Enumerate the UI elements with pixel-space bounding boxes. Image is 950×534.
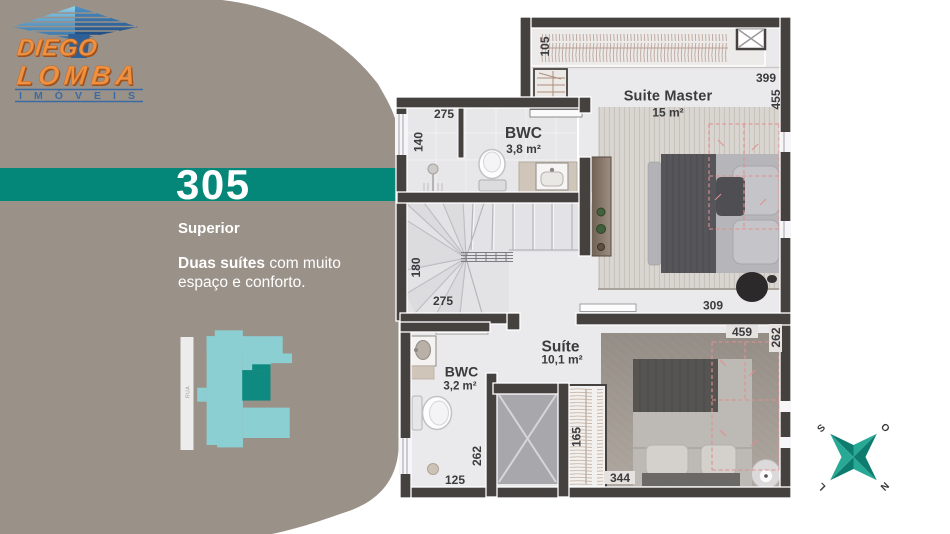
svg-text:DIEGO: DIEGO xyxy=(15,35,98,62)
svg-text:344: 344 xyxy=(610,471,630,485)
svg-text:15 m²: 15 m² xyxy=(652,106,683,120)
svg-text:125: 125 xyxy=(445,473,465,487)
svg-text:3,8 m²: 3,8 m² xyxy=(506,142,541,156)
svg-text:Duas suítes com muito: Duas suítes com muito xyxy=(178,255,341,272)
svg-text:309: 309 xyxy=(703,299,723,313)
svg-text:10,1 m²: 10,1 m² xyxy=(541,353,582,367)
svg-text:espaço e conforto.: espaço e conforto. xyxy=(178,274,306,291)
svg-text:180: 180 xyxy=(409,257,423,277)
svg-text:Suite Master: Suite Master xyxy=(624,89,713,105)
svg-text:455: 455 xyxy=(769,89,783,109)
svg-text:262: 262 xyxy=(769,327,783,347)
svg-text:105: 105 xyxy=(538,36,552,56)
svg-text:BWC: BWC xyxy=(445,364,478,380)
svg-text:275: 275 xyxy=(434,107,454,121)
svg-text:165: 165 xyxy=(570,427,584,447)
svg-text:459: 459 xyxy=(732,325,752,339)
svg-text:BWC: BWC xyxy=(505,125,542,142)
svg-text:140: 140 xyxy=(412,132,426,152)
svg-text:Superior: Superior xyxy=(178,220,240,237)
svg-text:275: 275 xyxy=(433,294,453,308)
svg-text:3,2 m²: 3,2 m² xyxy=(443,381,476,393)
svg-text:262: 262 xyxy=(470,446,484,466)
svg-text:RUA: RUA xyxy=(186,386,192,398)
svg-text:305: 305 xyxy=(176,161,251,208)
svg-text:399: 399 xyxy=(756,71,776,85)
